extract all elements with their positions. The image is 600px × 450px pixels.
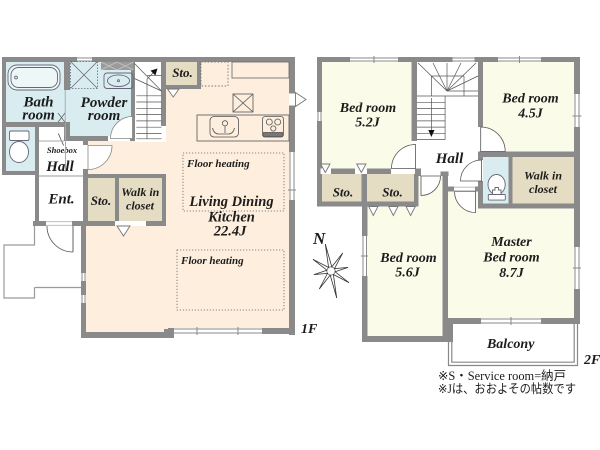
svg-text:Floor heating: Floor heating: [180, 255, 244, 267]
svg-text:Shoebox: Shoebox: [47, 145, 78, 155]
svg-text:Sto.: Sto.: [91, 193, 112, 208]
svg-text:Bed room: Bed room: [501, 92, 559, 107]
svg-text:N: N: [312, 229, 326, 248]
svg-text:Walk in: Walk in: [524, 169, 562, 183]
svg-text:closet: closet: [529, 182, 558, 196]
svg-text:closet: closet: [126, 199, 155, 213]
svg-text:Walk in: Walk in: [121, 185, 159, 199]
svg-text:room: room: [22, 108, 55, 124]
svg-text:Living Dining: Living Dining: [188, 194, 273, 210]
svg-text:Floor heating: Floor heating: [186, 158, 250, 170]
svg-text:Bed room: Bed room: [339, 101, 397, 116]
svg-text:Bed room: Bed room: [379, 251, 437, 266]
svg-text:1F: 1F: [301, 322, 318, 337]
svg-text:※S・Service room=納戸: ※S・Service room=納戸: [438, 369, 566, 383]
svg-text:8.7J: 8.7J: [499, 266, 525, 281]
svg-text:5.6J: 5.6J: [395, 266, 421, 281]
svg-text:5.2J: 5.2J: [355, 116, 381, 131]
svg-text:Hall: Hall: [435, 151, 464, 167]
svg-text:2F: 2F: [583, 353, 600, 368]
svg-text:Master: Master: [490, 235, 532, 250]
svg-text:Sto.: Sto.: [333, 185, 354, 200]
svg-text:※Jは、おおよその帖数です: ※Jは、おおよその帖数です: [438, 381, 576, 396]
svg-text:Sto.: Sto.: [172, 65, 193, 80]
svg-text:Balcony: Balcony: [486, 337, 535, 352]
svg-text:Ent.: Ent.: [47, 192, 74, 208]
svg-text:22.4J: 22.4J: [213, 224, 247, 240]
svg-text:4.5J: 4.5J: [517, 107, 544, 122]
svg-text:room: room: [88, 108, 121, 124]
svg-text:Sto.: Sto.: [382, 185, 403, 200]
svg-text:Hall: Hall: [45, 159, 74, 175]
svg-text:Bed room: Bed room: [482, 251, 540, 266]
